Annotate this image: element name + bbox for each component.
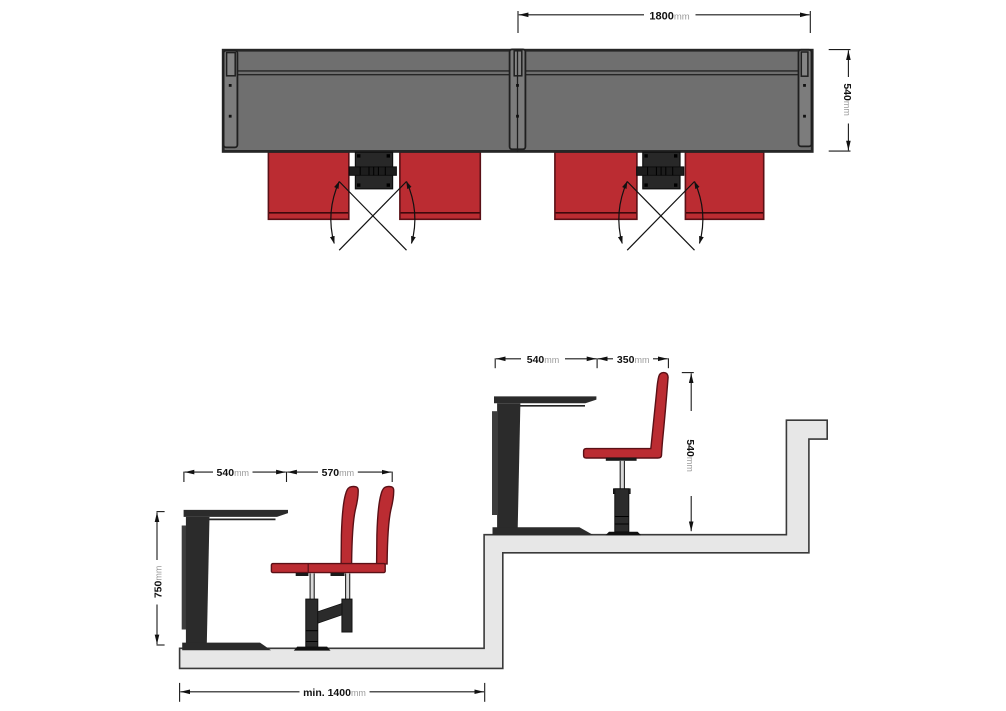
- svg-text:540mm: 540mm: [527, 354, 560, 366]
- svg-text:540mm: 540mm: [841, 83, 853, 116]
- svg-text:350mm: 350mm: [617, 354, 650, 366]
- svg-text:min. 1400mm: min. 1400mm: [303, 687, 366, 699]
- svg-text:750mm: 750mm: [153, 566, 165, 599]
- svg-text:1800mm: 1800mm: [649, 11, 689, 23]
- svg-text:540mm: 540mm: [684, 439, 696, 472]
- svg-text:540mm: 540mm: [217, 467, 250, 479]
- svg-text:570mm: 570mm: [322, 467, 355, 479]
